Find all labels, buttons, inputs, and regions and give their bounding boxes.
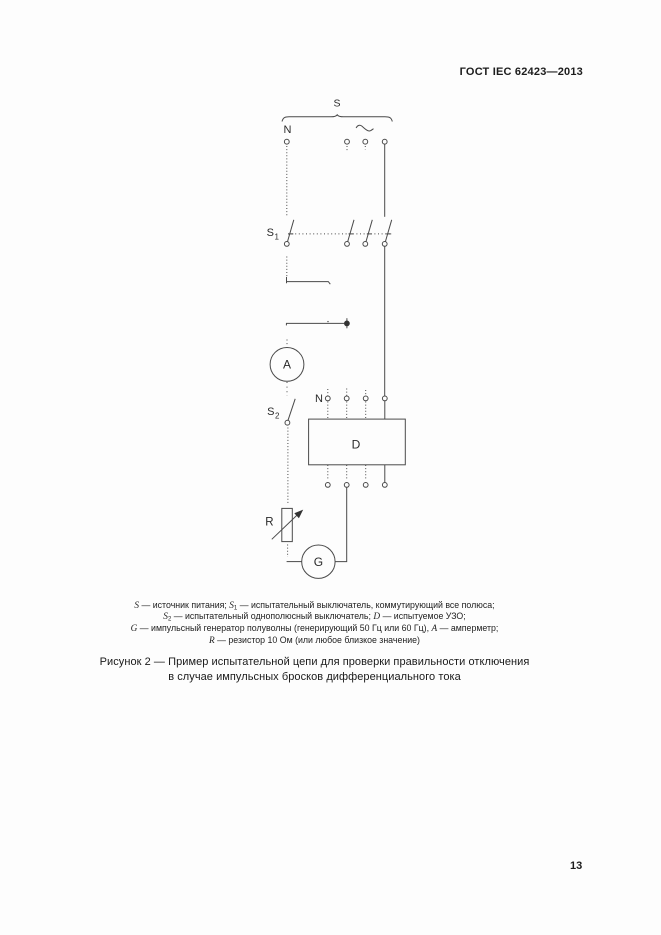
svg-text:D: D	[352, 437, 361, 451]
svg-text:G: G	[314, 555, 323, 569]
svg-text:N: N	[315, 393, 323, 405]
svg-text:2: 2	[275, 412, 280, 421]
svg-text:S: S	[267, 227, 274, 239]
svg-text:1: 1	[275, 233, 280, 242]
svg-text:N: N	[284, 124, 292, 136]
svg-text:R: R	[265, 516, 273, 528]
svg-text:S: S	[267, 406, 274, 418]
svg-text:A: A	[283, 358, 291, 372]
svg-text:S: S	[333, 98, 340, 110]
